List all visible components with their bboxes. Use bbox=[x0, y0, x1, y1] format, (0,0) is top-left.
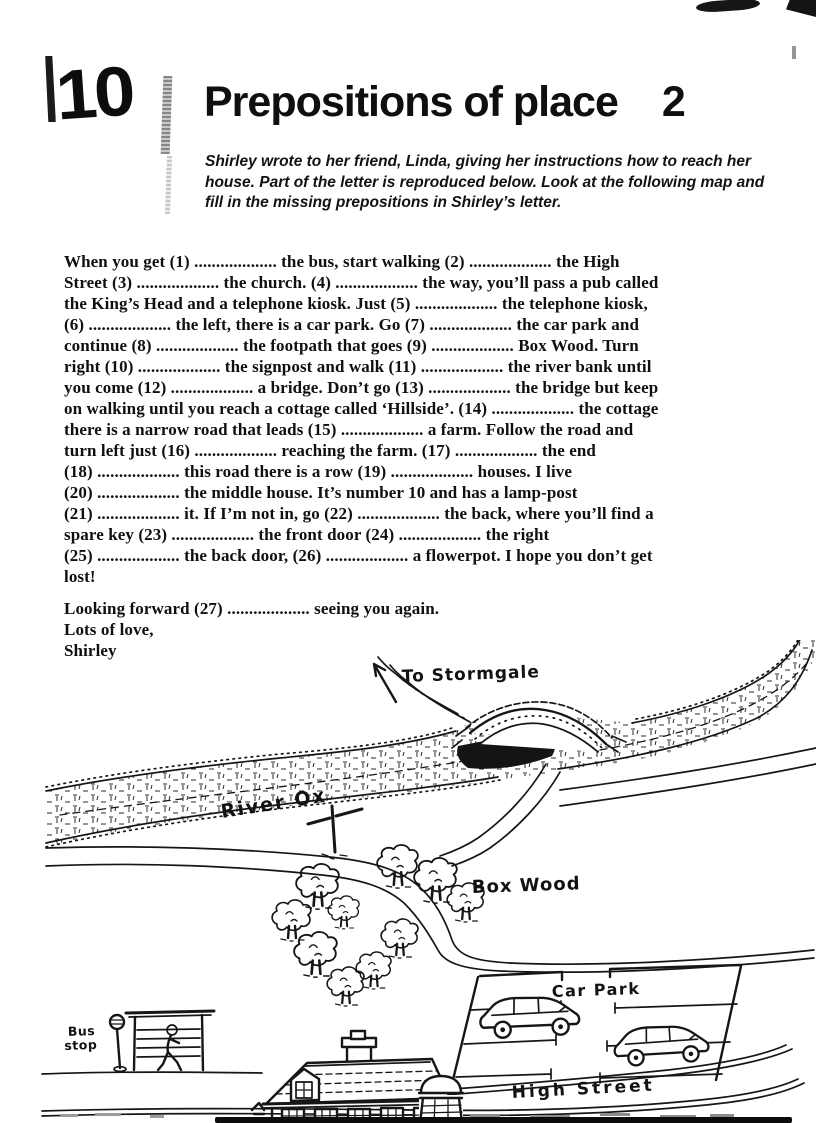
unit-number: 10 bbox=[53, 55, 134, 130]
stormgale-arrow-icon bbox=[374, 664, 396, 702]
page-title: Prepositions of place 2 bbox=[204, 78, 686, 127]
scan-corner-mark bbox=[786, 0, 816, 17]
tree-icon bbox=[294, 932, 337, 977]
bus-shelter-icon bbox=[126, 1011, 214, 1070]
high-street-label: High Street bbox=[511, 1076, 655, 1103]
letter-line: on walking until you reach a cottage cal… bbox=[64, 398, 764, 419]
letter-closing-line: Looking forward (27) ...................… bbox=[64, 598, 764, 619]
tree-icon bbox=[381, 919, 418, 958]
letter-line: (21) ................... it. If I’m not … bbox=[64, 503, 764, 524]
bus-stop: Bus stop bbox=[64, 1011, 214, 1071]
car-icon bbox=[613, 1023, 709, 1067]
scan-edge-tick bbox=[792, 46, 796, 59]
letter-line: (20) ................... the middle hous… bbox=[64, 482, 764, 503]
car-park: Car Park bbox=[451, 965, 741, 1088]
car-park-label: Car Park bbox=[551, 979, 640, 1001]
page-title-text: Prepositions of place bbox=[204, 78, 618, 127]
tree-icon bbox=[414, 858, 457, 903]
unit-decoration-stripe-right-fade bbox=[165, 156, 172, 214]
letter-line: continue (8) ................... the foo… bbox=[64, 335, 764, 356]
exercise-instructions: Shirley wrote to her friend, Linda, givi… bbox=[205, 152, 765, 214]
textbook-page: { "page": { "unit_number": "10", "title"… bbox=[0, 0, 816, 1123]
letter-line: you come (12) ................... a brid… bbox=[64, 377, 764, 398]
box-wood-label: Box Wood bbox=[471, 873, 580, 898]
hand-drawn-map: River Ox To Stormgale bbox=[0, 640, 816, 1123]
letter-line: the King’s Head and a telephone kiosk. J… bbox=[64, 293, 764, 314]
letter-line: spare key (23) ................... the f… bbox=[64, 524, 764, 545]
tree-icon bbox=[328, 896, 359, 929]
page-title-number: 2 bbox=[662, 78, 686, 127]
letter-line: there is a narrow road that leads (15) .… bbox=[64, 419, 764, 440]
bus-stop-sign-icon bbox=[110, 1015, 126, 1071]
instructions-line: house. Part of the letter is reproduced … bbox=[205, 173, 765, 194]
letter-line: lost! bbox=[64, 566, 764, 587]
stormgale-label: To Stormgale bbox=[401, 662, 540, 687]
footpath bbox=[46, 847, 814, 972]
bus-stop-label: Bus stop bbox=[64, 1023, 101, 1053]
instructions-line: fill in the missing prepositions in Shir… bbox=[205, 193, 765, 214]
car-icon bbox=[479, 995, 580, 1039]
letter-line: Street (3) ................... the churc… bbox=[64, 272, 764, 293]
instructions-line: Shirley wrote to her friend, Linda, givi… bbox=[205, 152, 765, 173]
box-wood: Box Wood bbox=[272, 845, 581, 1006]
tree-icon bbox=[356, 952, 391, 989]
scan-smudge bbox=[696, 0, 761, 13]
letter-closing-line: Lots of love, bbox=[64, 619, 764, 640]
telephone-kiosk-icon bbox=[419, 1076, 463, 1123]
unit-decoration-stripe-right bbox=[161, 76, 173, 154]
letter-line: (25) ................... the back door, … bbox=[64, 545, 764, 566]
letter-line: turn left just (16) ................... … bbox=[64, 440, 764, 461]
letter-line: (18) ................... this road there… bbox=[64, 461, 764, 482]
letter-line: right (10) ................... the signp… bbox=[64, 356, 764, 377]
signpost-icon bbox=[308, 806, 362, 859]
letter-text: When you get (1) ................... the… bbox=[64, 251, 764, 661]
letter-line: When you get (1) ................... the… bbox=[64, 251, 764, 272]
letter-line: (6) ................... the left, there … bbox=[64, 314, 764, 335]
